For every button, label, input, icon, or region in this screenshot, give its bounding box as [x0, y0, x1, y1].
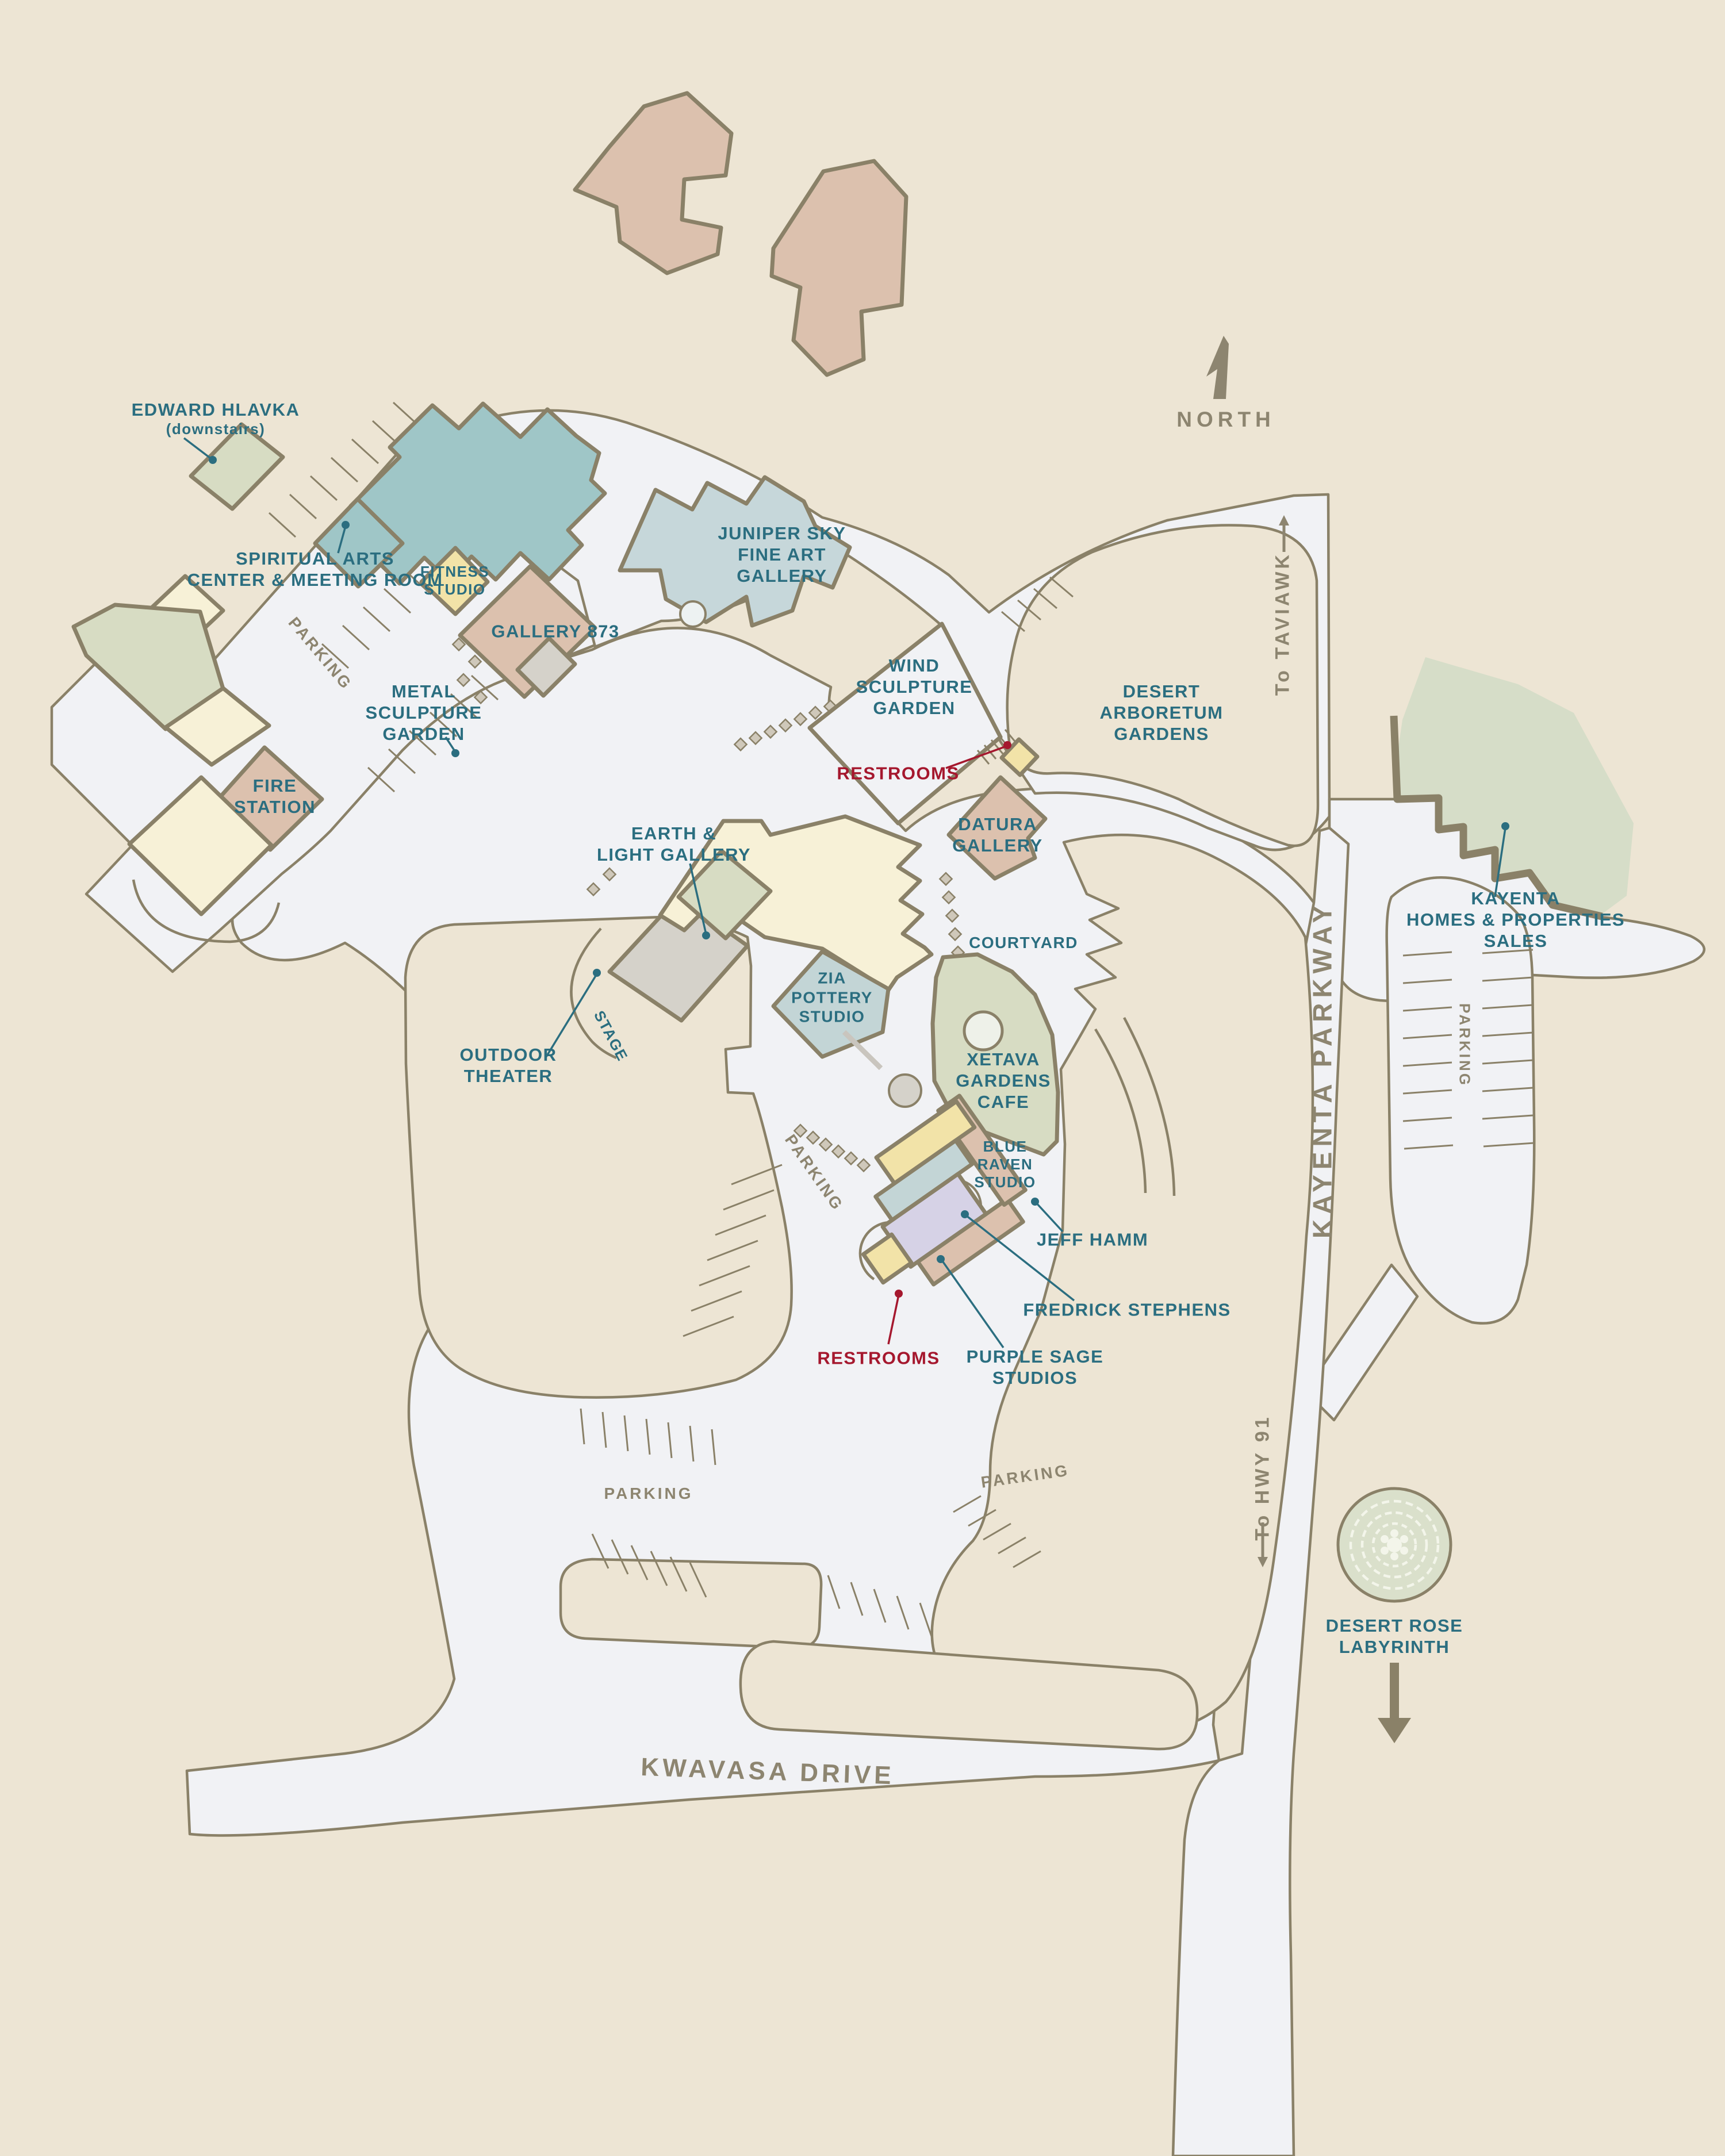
label-line: (downstairs): [132, 420, 300, 438]
label-line: STUDIO: [974, 1174, 1036, 1192]
label-line: SCULPTURE: [366, 702, 482, 723]
label-line: PARKING: [604, 1484, 693, 1503]
label-line: OUTDOOR: [460, 1044, 557, 1065]
label-line: SPIRITUAL ARTS: [187, 548, 443, 569]
label-spiritual-arts: SPIRITUAL ARTS CENTER & MEETING ROOM: [187, 548, 443, 590]
label-line: ZIA: [791, 969, 873, 988]
label-line: CAFE: [956, 1092, 1051, 1113]
label-fitness-studio: FITNESS STUDIO: [420, 563, 489, 599]
label-line: GALLERY: [952, 835, 1042, 856]
label-line: GARDENS: [1100, 724, 1224, 745]
label-line: To HWY 91: [1251, 1414, 1275, 1540]
label-courtyard: COURTYARD: [969, 933, 1078, 953]
label-line: DESERT ROSE: [1326, 1615, 1463, 1636]
label-line: STATION: [234, 796, 316, 818]
label-line: GALLERY 873: [491, 620, 619, 642]
label-line: GARDENS: [956, 1070, 1051, 1091]
label-to-taviawk: To TAVIAWK: [1271, 552, 1295, 696]
label-line: JEFF HAMM: [1037, 1229, 1148, 1250]
label-line: WIND: [856, 655, 973, 676]
label-zia-pottery: ZIA POTTERY STUDIO: [791, 969, 873, 1027]
label-parking-south-left: PARKING: [604, 1484, 693, 1503]
label-edward-hlavka: EDWARD HLAVKA (downstairs): [132, 399, 300, 438]
label-blue-raven: BLUE RAVEN STUDIO: [974, 1138, 1036, 1192]
label-line: DESERT: [1100, 681, 1224, 702]
label-line: BLUE: [974, 1138, 1036, 1156]
label-line: FINE ART: [718, 544, 846, 565]
label-to-hwy-91: To HWY 91: [1251, 1414, 1275, 1540]
label-fredrick-stephens: FREDRICK STEPHENS: [1023, 1299, 1230, 1320]
label-line: DATURA: [952, 814, 1042, 835]
label-line: GARDEN: [856, 698, 973, 719]
label-restrooms-north: RESTROOMS: [837, 762, 959, 784]
label-line: EARTH &: [597, 823, 751, 844]
xetava-fountain: [964, 1012, 1002, 1050]
island-theater: [405, 917, 792, 1398]
label-line: LABYRINTH: [1326, 1636, 1463, 1658]
label-desert-arboretum: DESERT ARBORETUM GARDENS: [1100, 681, 1224, 745]
label-outdoor-theater: OUTDOOR THEATER: [460, 1044, 557, 1087]
label-line: THEATER: [460, 1065, 557, 1087]
label-line: RAVEN: [974, 1156, 1036, 1173]
plaza-circle-small: [889, 1075, 921, 1107]
site-map: EDWARD HLAVKA (downstairs) SPIRITUAL ART…: [0, 0, 1725, 2156]
label-line: KAYENTA PARKWAY: [1306, 900, 1338, 1238]
label-north: NORTH: [1176, 407, 1275, 432]
label-line: KAYENTA: [1406, 888, 1625, 909]
label-line: SCULPTURE: [856, 676, 973, 697]
label-line: NORTH: [1176, 407, 1275, 432]
label-line: METAL: [366, 681, 482, 702]
labyrinth-arrow-icon: [1378, 1663, 1411, 1743]
label-juniper-sky: JUNIPER SKY FINE ART GALLERY: [718, 523, 846, 587]
north-arrow-icon: [1206, 336, 1229, 399]
label-line: STUDIOS: [967, 1367, 1104, 1388]
label-xetava-cafe: XETAVA GARDENS CAFE: [956, 1049, 1051, 1113]
label-line: XETAVA: [956, 1049, 1051, 1070]
label-earth-light: EARTH & LIGHT GALLERY: [597, 823, 751, 865]
label-line: To TAVIAWK: [1271, 552, 1295, 696]
label-kayenta-parkway: KAYENTA PARKWAY: [1306, 900, 1338, 1238]
label-line: PARKING: [1455, 1003, 1473, 1087]
label-line: COURTYARD: [969, 933, 1078, 953]
label-line: RESTROOMS: [837, 762, 959, 784]
label-kayenta-homes: KAYENTA HOMES & PROPERTIES SALES: [1406, 888, 1625, 952]
label-line: RESTROOMS: [817, 1347, 940, 1368]
label-line: HOMES & PROPERTIES: [1406, 909, 1625, 930]
juniper-sky-pool: [680, 601, 706, 627]
label-jeff-hamm: JEFF HAMM: [1037, 1229, 1148, 1250]
label-line: GARDEN: [366, 724, 482, 745]
label-line: FITNESS: [420, 563, 489, 581]
label-wind-sculpture-garden: WIND SCULPTURE GARDEN: [856, 655, 973, 719]
label-line: EDWARD HLAVKA: [132, 399, 300, 420]
label-line: POTTERY: [791, 988, 873, 1007]
label-metal-sculpture-garden: METAL SCULPTURE GARDEN: [366, 681, 482, 745]
label-line: CENTER & MEETING ROOM: [187, 569, 443, 590]
label-line: JUNIPER SKY: [718, 523, 846, 544]
label-line: LIGHT GALLERY: [597, 844, 751, 865]
label-line: SALES: [1406, 931, 1625, 952]
label-line: STUDIO: [420, 581, 489, 599]
label-gallery-873: GALLERY 873: [491, 620, 619, 642]
label-purple-sage: PURPLE SAGE STUDIOS: [967, 1346, 1104, 1388]
label-line: STUDIO: [791, 1007, 873, 1027]
north-building-east: [772, 161, 906, 375]
label-line: FREDRICK STEPHENS: [1023, 1299, 1230, 1320]
label-line: PURPLE SAGE: [967, 1346, 1104, 1367]
label-line: FIRE: [234, 775, 316, 796]
labyrinth-icon: [1338, 1489, 1451, 1601]
label-fire-station: FIRE STATION: [234, 775, 316, 818]
label-line: ARBORETUM: [1100, 702, 1224, 723]
island-south-small: [561, 1559, 821, 1648]
label-restrooms-south: RESTROOMS: [817, 1347, 940, 1368]
label-desert-rose-labyrinth: DESERT ROSE LABYRINTH: [1326, 1615, 1463, 1658]
label-line: GALLERY: [718, 566, 846, 587]
label-parking-east: PARKING: [1455, 1003, 1473, 1087]
label-datura-gallery: DATURA GALLERY: [952, 814, 1042, 856]
north-building-west: [575, 93, 731, 273]
